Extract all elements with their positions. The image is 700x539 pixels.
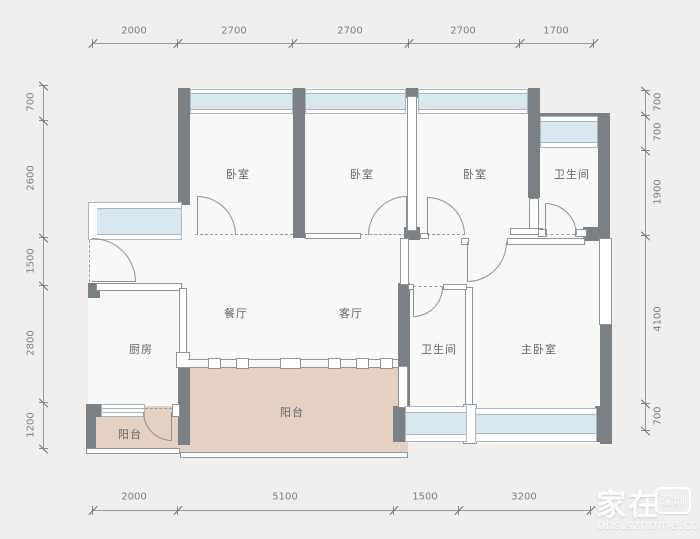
room-label-balcony-main: 阳台 [280,404,304,420]
balcony-parapet [180,452,408,458]
window [305,89,406,114]
window-mullion [102,408,144,409]
dimension-tick [641,403,650,404]
balcony-parapet [86,448,180,454]
floor-plan-canvas: 卧室 卧室 卧室 卫生间 厨房 餐厅 客厅 卫生间 主卧室 阳台 阳台 2000… [0,0,700,539]
dimension-label: 5100 [272,492,297,503]
dimension-tick [593,39,594,48]
dimension-label: 1200 [26,412,37,437]
window-glass [191,93,292,110]
window [88,202,182,240]
sliding-door-panel [236,358,249,369]
sliding-door-panel [380,358,393,369]
dashed-opening [89,240,90,282]
window-glass [306,93,405,110]
dimension-label: 2700 [450,26,475,37]
dimension-tick [177,506,178,515]
wall-segment [293,88,305,238]
dimension-label: 2700 [337,26,362,37]
dimension-label: 700 [653,92,664,111]
door-leaf [545,203,546,235]
dimension-tick [641,150,650,151]
watermark-badge: 深圳 [655,487,691,514]
dimension-label: 2000 [121,26,146,37]
room-label-bathroom-2: 卫生间 [421,341,457,357]
dashed-opening [145,408,172,409]
room-label-balcony-small: 阳台 [118,426,142,442]
dimension-label: 2700 [221,26,246,37]
room-label-bathroom-1: 卫生间 [554,166,590,182]
wall-segment [595,406,610,442]
partition-wall [599,238,612,325]
window-glass [419,93,527,110]
door-leaf [171,412,172,441]
window [101,404,145,417]
sliding-door [188,359,398,368]
wall-segment [528,88,540,198]
dimension-label: 1500 [26,248,37,273]
dimension-tick [92,39,93,48]
room-label-master-bedroom: 主卧室 [521,341,557,357]
dimension-tick [408,39,409,48]
dimension-tick [39,237,48,238]
dimension-tick [39,120,48,121]
window [540,116,598,148]
dimension-tick [292,39,293,48]
dimension-label: 3200 [511,492,536,503]
room-label-kitchen: 厨房 [129,341,153,357]
dimension-line-bottom [92,510,590,511]
dimension-line-left [43,85,44,448]
wall-segment [598,113,610,238]
door-leaf [467,242,468,282]
partition-wall [407,96,417,231]
door-leaf [413,287,414,317]
window-glass [541,121,597,143]
dimension-label: 700 [26,92,37,111]
dimension-tick [39,285,48,286]
door-leaf [406,196,407,235]
door-leaf [197,196,198,235]
partition-wall [172,404,180,417]
dimension-tick [39,402,48,403]
dimension-tick [641,115,650,116]
partition-wall [507,238,585,245]
dimension-label: 2800 [26,330,37,355]
window-glass [406,412,466,435]
dimension-label: 1700 [543,26,568,37]
dimension-line-right [645,90,646,430]
door-leaf [92,281,136,282]
window-glass [476,414,596,434]
dimension-label: 1500 [412,492,437,503]
room-label-dining: 餐厅 [224,305,248,321]
dimension-tick [39,448,48,449]
wall-segment [178,88,190,205]
dimension-tick [92,506,93,515]
dimension-label: 2600 [26,165,37,190]
window [405,406,467,442]
watermark-site-url: bbs.szhome.com [597,518,700,532]
dimension-label: 4100 [653,306,664,331]
room-label-bedroom-3: 卧室 [463,166,487,182]
dimension-tick [519,39,520,48]
room-label-bedroom-1: 卧室 [226,166,250,182]
dimension-label: 1900 [653,179,664,204]
dimension-tick [39,85,48,86]
dimension-tick [590,506,591,515]
dimension-tick [641,90,650,91]
partition-wall [305,233,361,239]
room-floor-dining-living [178,235,410,368]
dimension-tick [393,506,394,515]
window [190,89,293,114]
sliding-door-panel [280,358,301,369]
room-label-living: 客厅 [339,305,363,321]
partition-wall [400,238,409,285]
dimension-label: 2000 [121,492,146,503]
dimension-tick [177,39,178,48]
sliding-door-panel [356,358,369,369]
partition-wall [96,283,182,291]
window-mullion [102,412,144,413]
door-leaf [427,197,428,235]
dimension-tick [458,506,459,515]
window [418,89,528,114]
window-glass [97,208,181,235]
dimension-label: 700 [653,406,664,425]
dimension-tick [641,235,650,236]
partition-wall [398,366,408,408]
window [475,408,597,442]
dimension-tick [641,430,650,431]
sliding-door-panel [328,358,341,369]
room-label-bedroom-2: 卧室 [350,166,374,182]
partition-wall [443,284,467,290]
partition-wall [179,288,187,360]
sliding-door-panel [208,358,221,369]
partition-wall [465,287,473,408]
dimension-label: 700 [653,122,664,141]
